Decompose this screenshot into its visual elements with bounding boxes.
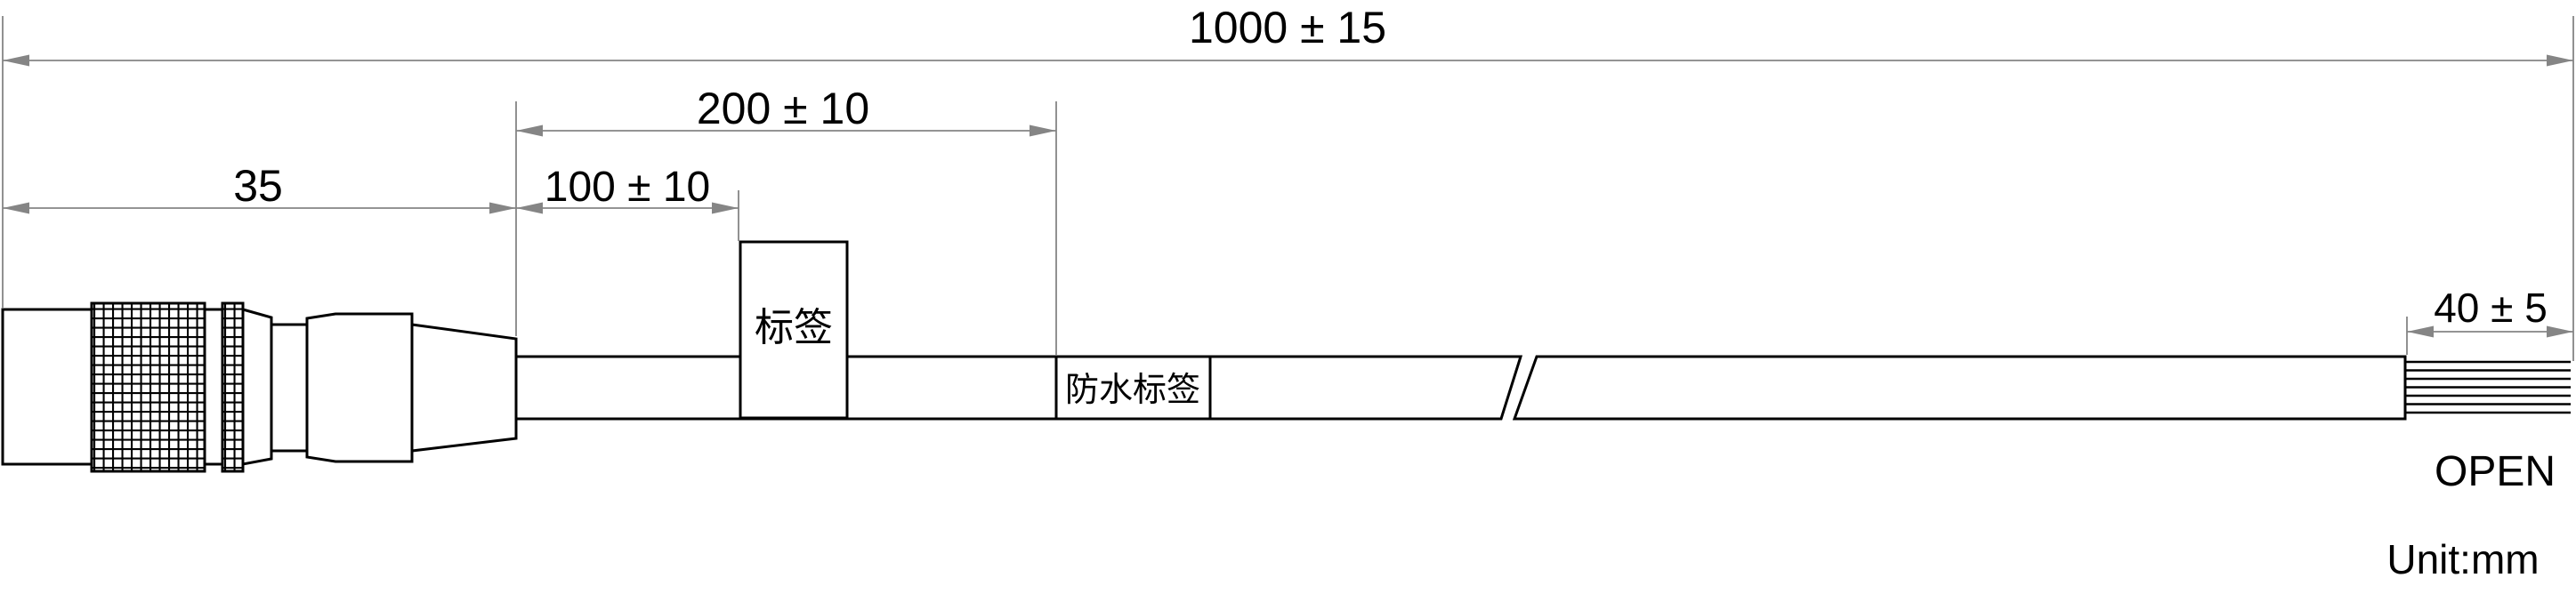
- waterproof-tag-text: 防水标签: [1065, 372, 1200, 409]
- connector-neck: [271, 325, 307, 451]
- cable-end-open-text: OPEN: [2435, 448, 2556, 495]
- connector-front-cylinder: [3, 309, 92, 464]
- arrowhead-right-icon: [712, 203, 739, 214]
- dim-overall-text: 1000 ± 15: [1189, 3, 1386, 52]
- label-tag-text: 标签: [755, 306, 833, 349]
- cable-segment-right: [1514, 357, 2405, 419]
- arrowhead-left-icon: [3, 203, 29, 214]
- drawing-canvas: 1000 ± 15 200 ± 10 35 100 ± 10 40 ± 5 标签…: [0, 0, 2576, 602]
- arrowhead-left-icon: [2407, 326, 2434, 338]
- connector-taper-ring: [243, 309, 271, 464]
- arrowhead-left-icon: [516, 125, 543, 137]
- dim-to-waterproof-label: 200 ± 10: [516, 84, 1056, 137]
- connector: [3, 303, 516, 471]
- knurl-grip-small: [222, 303, 243, 471]
- arrowhead-right-icon: [1030, 125, 1056, 137]
- dim-overall: 1000 ± 15: [3, 3, 2573, 67]
- unit-note-text: Unit:mm: [2386, 536, 2539, 582]
- cable-dimension-drawing: 1000 ± 15 200 ± 10 35 100 ± 10 40 ± 5 标签…: [0, 0, 2576, 602]
- dim-to-label: 100 ± 10: [516, 164, 739, 214]
- dim-connector-length-text: 35: [233, 161, 283, 211]
- open-wires: [2405, 362, 2571, 413]
- cable-segment-left: [516, 357, 1521, 419]
- arrowhead-left-icon: [3, 55, 29, 67]
- dim-connector-length: 35: [3, 161, 516, 214]
- dim-strip-length: 40 ± 5: [2407, 285, 2573, 338]
- arrowhead-right-icon: [489, 203, 516, 214]
- strain-relief-cone: [412, 325, 516, 451]
- arrowhead-right-icon: [2547, 55, 2573, 67]
- dim-to-label-text: 100 ± 10: [545, 164, 711, 211]
- connector-backshell: [307, 314, 412, 462]
- connector-smooth-ring: [205, 309, 222, 464]
- dim-strip-length-text: 40 ± 5: [2434, 285, 2548, 331]
- arrowhead-right-icon: [2547, 326, 2573, 338]
- arrowhead-left-icon: [516, 203, 543, 214]
- knurl-grip-large: [92, 303, 205, 471]
- extension-lines: [3, 16, 2573, 361]
- dim-to-waterproof-label-text: 200 ± 10: [697, 84, 869, 133]
